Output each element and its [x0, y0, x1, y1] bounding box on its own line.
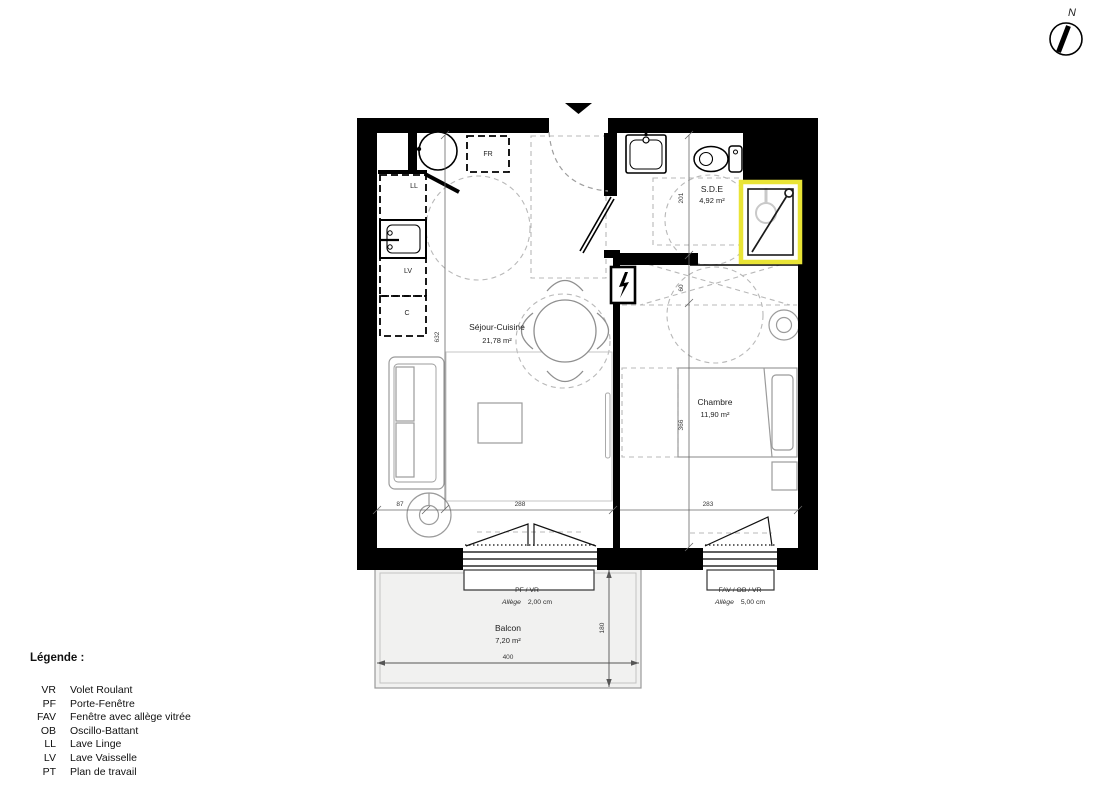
bed [678, 368, 797, 457]
floor-plan-page: 632 201 60 366 87 288 283 400 180 Séjour… [0, 0, 1110, 800]
legend: Légende : VR Volet Roulant PF Porte-Fenê… [30, 652, 191, 779]
legend-item-pt: PT Plan de travail [30, 766, 191, 780]
wall-kitchen-stub [408, 133, 417, 172]
wall-bottom-2 [597, 548, 703, 570]
legend-item-ob: OB Oscillo-Battant [30, 725, 191, 739]
legend-item-fav: FAV Fenêtre avec allège vitrée [30, 711, 191, 725]
wall-top-left [357, 118, 549, 133]
north-compass: N [1050, 7, 1082, 55]
sde-name: S.D.E [701, 184, 724, 194]
turning-circle-chambre [667, 267, 763, 363]
chambre-name: Chambre [698, 397, 733, 407]
washer-label: LL [410, 183, 418, 190]
sejour-window-type: PF / VR [515, 587, 539, 594]
dim-180: 180 [599, 622, 606, 633]
bed-approach-zone [622, 368, 678, 457]
legend-title: Légende : [30, 652, 191, 664]
washbasin-tap [643, 137, 649, 143]
chambre-cross-2 [640, 262, 790, 305]
chambre-cross-1 [640, 262, 790, 305]
bed-fold [764, 368, 772, 457]
dim-400: 400 [503, 654, 514, 661]
wall-kitchen-counter [378, 170, 427, 174]
window-sejour [463, 524, 597, 590]
coffee-table [478, 403, 522, 443]
sejour-furniture [389, 281, 612, 538]
chair-east [597, 313, 609, 349]
sejour-area: 21,78 m² [482, 336, 512, 345]
dim-288: 288 [515, 501, 526, 508]
chambre-area: 11,90 m² [700, 410, 730, 419]
dim-60: 60 [678, 284, 685, 292]
sde-area: 4,92 m² [699, 196, 725, 205]
cupboard-label: C [404, 310, 409, 317]
legend-item-pf: PF Porte-Fenêtre [30, 698, 191, 712]
legend-item-ll: LL Lave Linge [30, 738, 191, 752]
kitchen [380, 132, 509, 336]
chair-south [547, 371, 583, 382]
shower-door-pivot [785, 189, 793, 197]
balcon-name: Balcon [495, 623, 521, 633]
compass-n-label: N [1068, 7, 1076, 19]
entry-arrow [565, 103, 592, 114]
chambre-furniture [678, 310, 799, 490]
dishwasher-box [380, 258, 426, 296]
entry-door-swing [549, 132, 608, 191]
washer-box [380, 175, 426, 220]
dishwasher-label: LV [404, 268, 412, 275]
entry-zone [531, 136, 606, 278]
washbasin-tap-dot [644, 133, 647, 136]
sofa-cushion-2 [396, 423, 414, 477]
water-heater-valve [417, 147, 421, 151]
chair-north [547, 281, 583, 292]
sde-door-leaf-2 [583, 199, 614, 253]
window-chambre [703, 517, 777, 590]
wall-sde-left-upper [604, 133, 617, 196]
casement-right [534, 524, 596, 546]
pillow [772, 375, 793, 450]
wall-bottom-3 [777, 548, 818, 570]
wall-bottom-1 [357, 548, 463, 570]
dim-201: 201 [678, 192, 685, 203]
compass-needle [1059, 26, 1069, 52]
legend-item-vr: VR Volet Roulant [30, 684, 191, 698]
fridge-label: FR [483, 151, 492, 158]
dim-283: 283 [703, 501, 714, 508]
dining-table [534, 300, 596, 362]
chambre-window-allege: Allège5,00 cm [714, 599, 765, 606]
bedside-table [772, 462, 797, 490]
duct-block [743, 133, 798, 183]
wall-top-right [608, 118, 818, 133]
sejour-name: Séjour-Cuisine [469, 322, 525, 332]
balcon-area: 7,20 m² [495, 636, 521, 645]
wall-left [357, 118, 377, 570]
sofa-cushion-1 [396, 367, 414, 421]
dim-87: 87 [396, 501, 404, 508]
chambre-window-type: FAV / OB / VR [719, 587, 762, 594]
dim-366: 366 [678, 419, 685, 430]
turning-circle-sejour [426, 176, 530, 280]
legend-item-lv: LV Lave Vaisselle [30, 752, 191, 766]
cupboard-box [380, 296, 426, 336]
stool-inner [777, 318, 792, 333]
dim-632: 632 [434, 331, 441, 342]
side-table-inner [420, 506, 439, 525]
water-heater [419, 132, 457, 170]
rug [446, 352, 612, 501]
closet-door [425, 174, 459, 192]
casement-left [466, 524, 528, 546]
radiator [606, 393, 611, 458]
stool-outer [769, 310, 799, 340]
casement [705, 517, 772, 546]
